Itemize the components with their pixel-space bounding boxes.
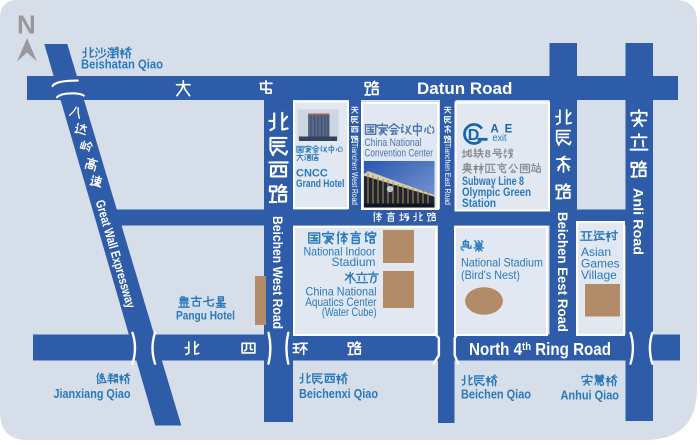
- svg-text:Jianxiang Qiao: Jianxiang Qiao: [54, 387, 131, 401]
- svg-text:Anhui Qiao: Anhui Qiao: [561, 389, 620, 403]
- svg-text:Village: Village: [581, 268, 617, 282]
- svg-text:Stadium: Stadium: [331, 255, 375, 269]
- svg-text:Beichen Eest Road: Beichen Eest Road: [555, 212, 570, 332]
- svg-text:(Water Cube): (Water Cube): [322, 305, 377, 319]
- svg-text:Grand Hotel: Grand Hotel: [296, 178, 345, 190]
- svg-text:Tianchen East Road: Tianchen East Road: [443, 143, 453, 205]
- svg-text:8: 8: [485, 149, 491, 161]
- svg-text:Tianchen West Road: Tianchen West Road: [350, 143, 360, 205]
- svg-text:Beichen Qiao: Beichen Qiao: [461, 388, 531, 402]
- svg-text:(Bird's Nest): (Bird's Nest): [461, 268, 520, 282]
- svg-text:exit: exit: [493, 133, 507, 144]
- svg-text:Beichenxi Qiao: Beichenxi Qiao: [299, 387, 378, 401]
- svg-text:D: D: [468, 127, 480, 144]
- svg-text:Station: Station: [462, 196, 496, 210]
- svg-text:Pangu Hotel: Pangu Hotel: [176, 309, 235, 323]
- svg-text:Beichen West Road: Beichen West Road: [270, 216, 285, 329]
- svg-text:Beishatan Qiao: Beishatan Qiao: [81, 58, 163, 72]
- svg-text:N: N: [17, 10, 36, 40]
- svg-text:Datun Road: Datun Road: [417, 79, 512, 98]
- svg-text:Convention Center: Convention Center: [365, 147, 434, 159]
- svg-text:North 4th Ring Road: North 4th Ring Road: [469, 339, 611, 359]
- svg-text:Anli Road: Anli Road: [631, 188, 646, 255]
